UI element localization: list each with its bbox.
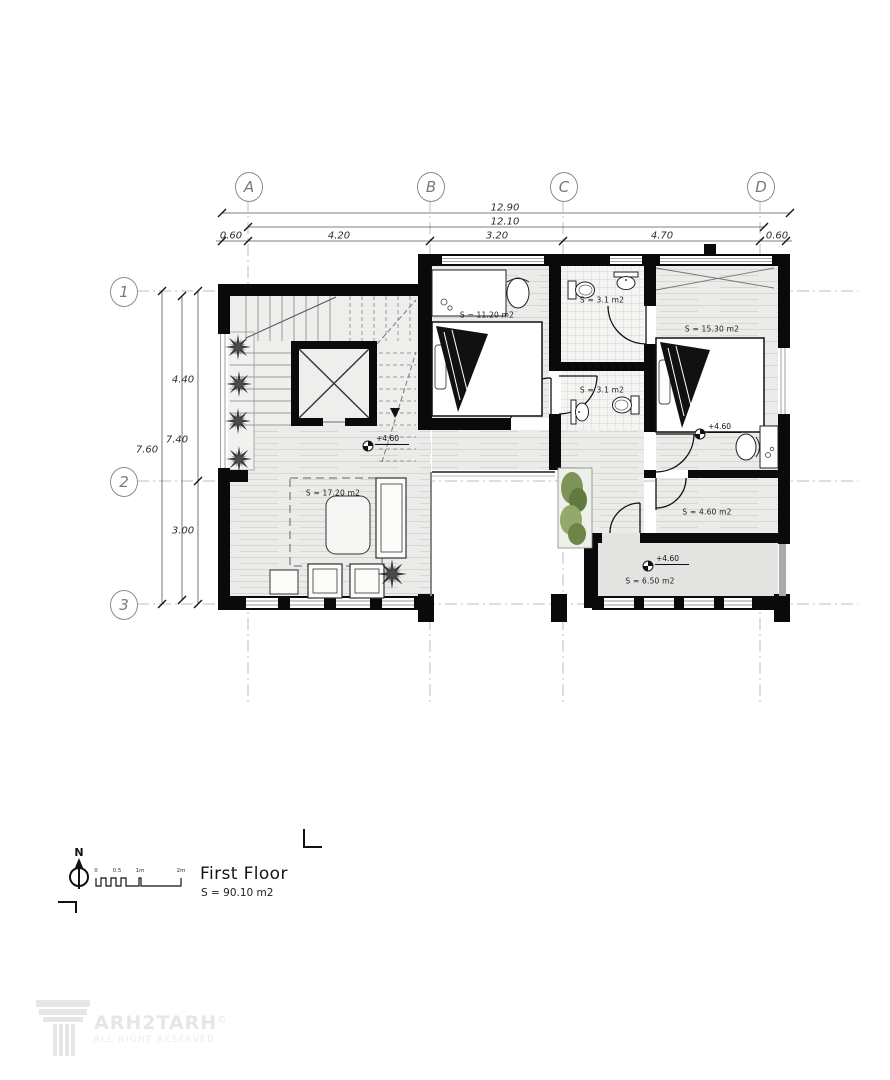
plant-icon xyxy=(225,408,251,434)
north-arrow-icon xyxy=(70,858,88,889)
grid-bubble-c: C xyxy=(550,172,578,202)
grid-bubble-3: 3 xyxy=(110,590,138,620)
level-label-bedroom2: +4.60 xyxy=(707,422,741,433)
terrace-right-wall xyxy=(779,544,786,596)
dim-h-seg-4: 0.60 xyxy=(766,231,788,242)
scale-tick-2m: 2m xyxy=(177,868,186,874)
dim-v-seg-0: 4.40 xyxy=(172,375,194,386)
grid-bubble-d: D xyxy=(747,172,775,202)
brand-tagline: ALL RIGHT RESERVED xyxy=(94,1035,226,1045)
vestibule-floor xyxy=(592,470,644,533)
dim-v-total: 7.60 xyxy=(136,445,158,456)
grid-bubble-1: 1 xyxy=(110,277,138,307)
grid-bubble-a: A xyxy=(235,172,263,202)
room-label-bath2: S = 3.1 m2 xyxy=(580,386,624,395)
scale-tick-0: 0 xyxy=(94,868,98,874)
plan-area: S = 90.10 m2 xyxy=(201,887,273,899)
closet-floor xyxy=(656,478,778,533)
plant-icon xyxy=(377,559,407,589)
hall-floor xyxy=(432,430,644,470)
dim-v-inner: 7.40 xyxy=(166,435,188,446)
grid-bubble-b: B xyxy=(417,172,445,202)
dim-h-total: 12.90 xyxy=(491,203,520,214)
dim-v-seg-1: 3.00 xyxy=(172,526,194,537)
sofa xyxy=(376,478,406,558)
plant-icon xyxy=(226,446,252,472)
floor-plan-drawing xyxy=(0,0,890,1080)
brand-logo: ARH2TARH© ALL RIGHT RESERVED xyxy=(36,1000,226,1058)
room-label-bath1: S = 3.1 m2 xyxy=(580,296,624,305)
scale-bar-icon xyxy=(96,878,181,886)
room-label-bedroom2: S = 15.30 m2 xyxy=(685,325,739,334)
level-label-terrace: +4.60 xyxy=(655,554,689,565)
dim-h-seg-3: 4.70 xyxy=(651,231,673,242)
room-label-living: S = 17.20 m2 xyxy=(306,489,360,498)
plant-icon xyxy=(226,371,252,397)
plan-title: First Floor xyxy=(200,864,288,884)
dim-h-seg-1: 4.20 xyxy=(328,231,350,242)
north-label: N xyxy=(74,846,83,859)
scale-tick-05: 0.5 xyxy=(113,868,122,874)
floor-plan-sheet: A B C D 1 2 3 12.90 12.10 0.60 4.20 3.20… xyxy=(0,0,890,1080)
level-label-hall: +4.60 xyxy=(375,434,409,445)
plant-icon xyxy=(225,334,251,360)
room-label-terrace: S = 6.50 m2 xyxy=(625,577,674,586)
toilet-bath2 xyxy=(613,396,640,414)
dim-h-inner: 12.10 xyxy=(491,217,520,228)
scale-tick-1m: 1m xyxy=(136,868,145,874)
green-planter xyxy=(558,468,592,548)
room-label-bedroom1: S = 11.20 m2 xyxy=(460,311,514,320)
copyright-mark: © xyxy=(217,1016,226,1026)
dim-h-seg-0: 0.60 xyxy=(220,231,242,242)
bed-bedroom1 xyxy=(432,322,542,416)
column-logo-icon xyxy=(36,1000,92,1058)
room-label-closet: S = 4.60 m2 xyxy=(682,508,731,517)
side-table xyxy=(270,570,298,594)
brand-name: ARH2TARH xyxy=(94,1012,217,1034)
grid-bubble-2: 2 xyxy=(110,467,138,497)
bed-bedroom2 xyxy=(656,338,764,432)
dim-h-seg-2: 3.20 xyxy=(486,231,508,242)
coffee-table xyxy=(326,496,370,554)
